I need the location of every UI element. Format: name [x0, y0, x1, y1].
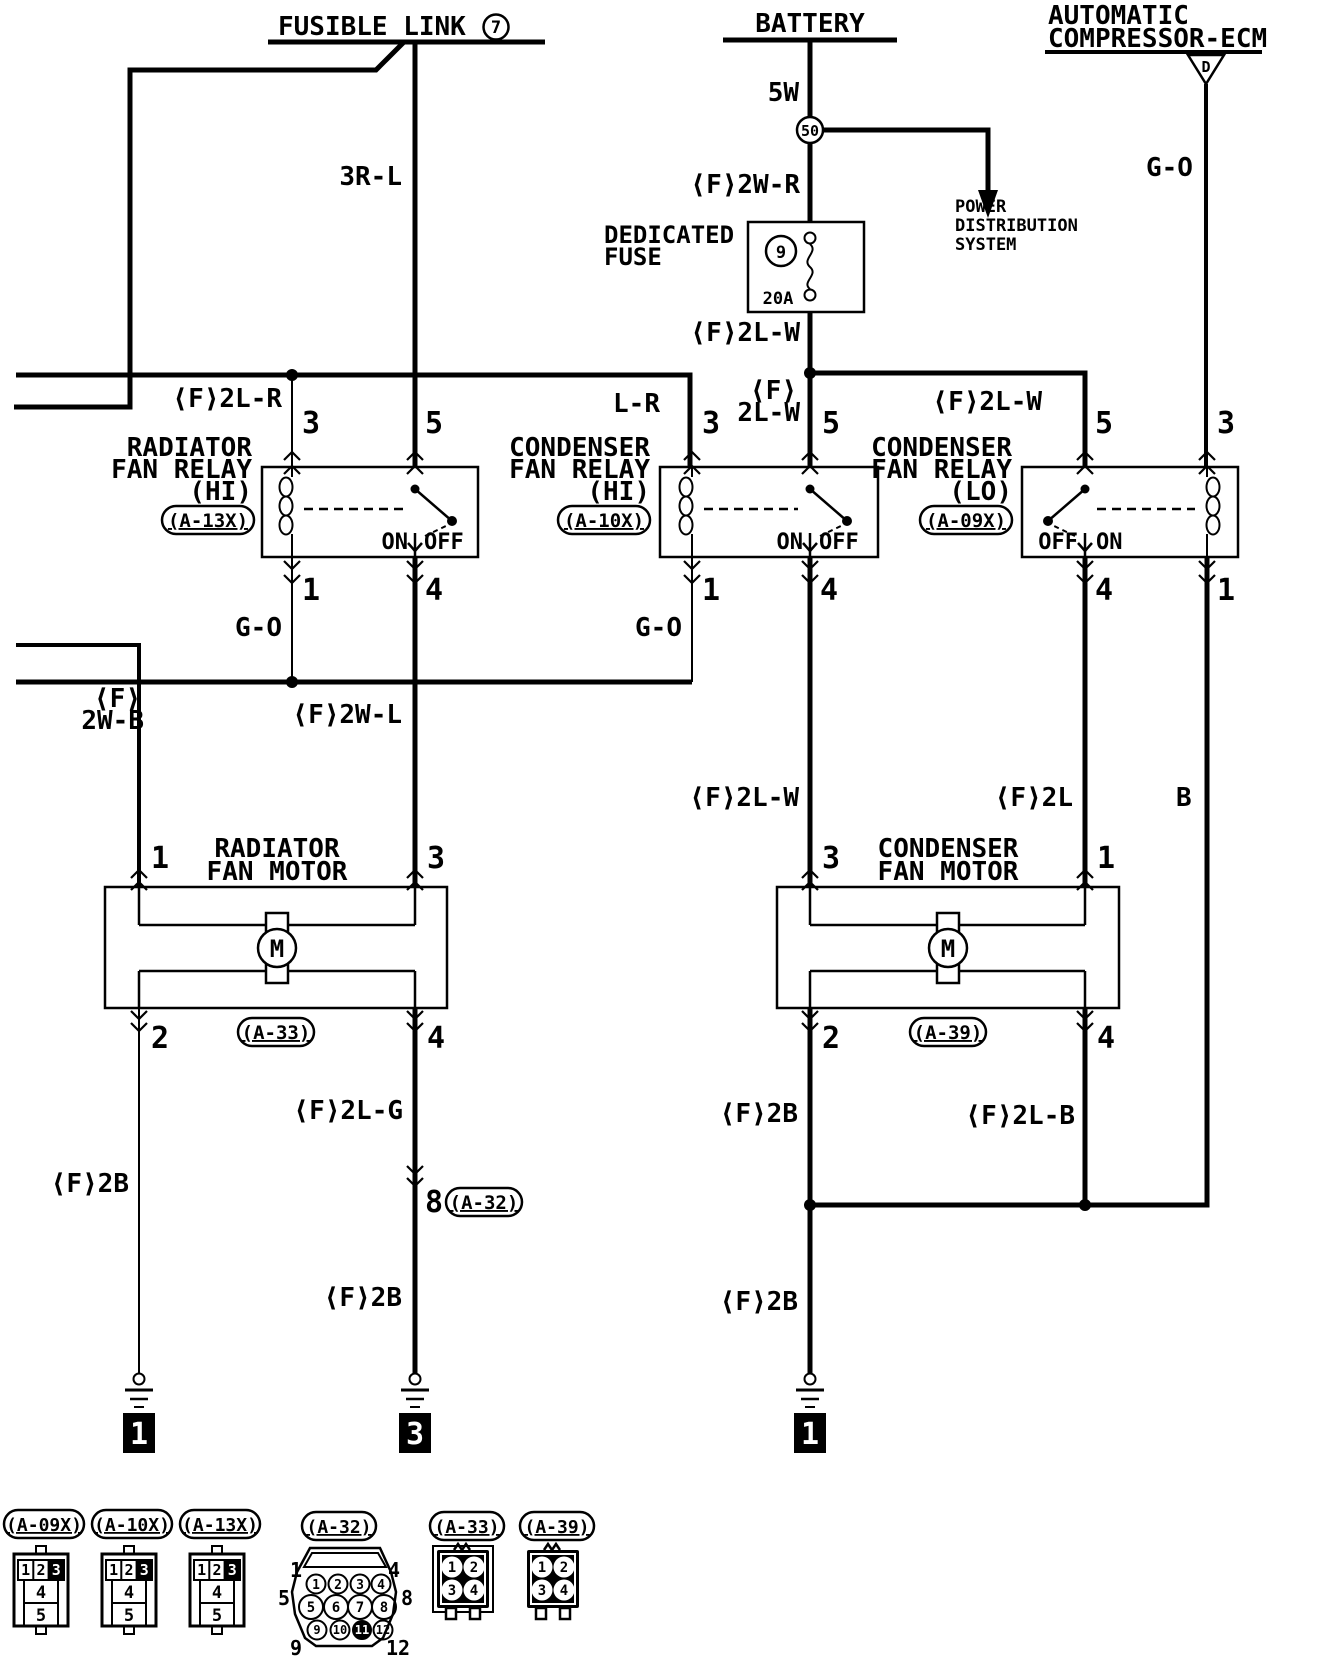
- fuse-label-line2: FUSE: [604, 243, 662, 271]
- power-dist-line3: SYSTEM: [955, 235, 1016, 255]
- a09x-face-pin: 1: [21, 1561, 30, 1579]
- a10x-pin5: 5: [822, 406, 840, 441]
- wire-junction-dot: [804, 367, 816, 379]
- a13x-face-pin5: 5: [212, 1606, 222, 1626]
- wire-f2b-r1-label: ⟨F⟩2B: [720, 1099, 798, 1129]
- ground-num-1: 1: [130, 1417, 148, 1452]
- a33-id: (A-33): [242, 1022, 311, 1044]
- a10x-id: (A-10X): [564, 510, 644, 532]
- fuse-rating: 20A: [763, 289, 794, 309]
- a10x-pin4: 4: [820, 573, 838, 608]
- a32-corner-4: 4: [388, 1558, 400, 1582]
- a13x-off-label: OFF: [424, 530, 464, 555]
- wire-junction-dot: [1079, 1199, 1091, 1211]
- a32-face-pin: 3: [356, 1578, 364, 1593]
- a13x-face-label: (A-13X): [182, 1515, 258, 1536]
- a32-pin8: 8: [425, 1185, 443, 1220]
- wire-f2l-label: ⟨F⟩2L: [995, 783, 1073, 813]
- a13x-face-pin: 2: [212, 1561, 221, 1579]
- a13x-pin3: 3: [302, 406, 320, 441]
- a13x-pin5: 5: [425, 406, 443, 441]
- power-dist-branch: [823, 130, 988, 192]
- a39-face-label: (A-39): [524, 1517, 589, 1538]
- a13x-pin1: 1: [302, 573, 320, 608]
- a09x-pin3: 3: [1217, 406, 1235, 441]
- a39-face-pin: 2: [560, 1560, 568, 1576]
- a32-face-pin: 11: [355, 1623, 369, 1637]
- battery-label: BATTERY: [755, 9, 865, 39]
- a32-face-pin: 5: [307, 1600, 315, 1616]
- a09x-pin1: 1: [1217, 573, 1235, 608]
- cond-motor-pin3: 3: [822, 841, 840, 876]
- cond-motor-pin4: 4: [1097, 1021, 1115, 1056]
- rad-motor-m: M: [270, 935, 284, 963]
- wire-3rl-label: 3R-L: [339, 162, 402, 192]
- connector-face-a33: [433, 1544, 493, 1619]
- a32-face-pin: 12: [376, 1623, 390, 1637]
- a13x-face-pin: 3: [228, 1561, 237, 1579]
- wire-junction-dot: [286, 369, 298, 381]
- a13x-pin4: 4: [425, 573, 443, 608]
- a10x-pin1: 1: [702, 573, 720, 608]
- cond-motor-name2: FAN MOTOR: [878, 857, 1019, 887]
- a10x-on-label: ON: [777, 530, 804, 555]
- wire-junction-dot: [804, 1199, 816, 1211]
- ground-num-3: 3: [406, 1417, 424, 1452]
- a32-face-label: (A-32): [306, 1517, 371, 1538]
- power-dist-line1: POWER: [955, 197, 1007, 217]
- cond-motor-pin2: 2: [822, 1021, 840, 1056]
- a09x-pin4: 4: [1095, 573, 1113, 608]
- fusible-left-branch: [14, 42, 404, 407]
- rad-motor-pin4: 4: [427, 1021, 445, 1056]
- cond-motor-pin1: 1: [1097, 841, 1115, 876]
- a10x-off-label: OFF: [819, 530, 859, 555]
- a32-face-pin: 7: [356, 1600, 364, 1616]
- a32-id: (A-32): [450, 1192, 519, 1214]
- wire-b-label: B: [1176, 783, 1192, 813]
- a33-face-pin: 1: [448, 1560, 456, 1576]
- a33-face-pin: 4: [470, 1583, 478, 1599]
- wire-f2lg-label: ⟨F⟩2L-G: [293, 1096, 403, 1126]
- a09x-face-pin4: 4: [36, 1583, 46, 1603]
- a09x-off-label: OFF: [1038, 530, 1078, 555]
- a10x-face-pin: 1: [109, 1561, 118, 1579]
- a32-corner-1: 1: [290, 1558, 302, 1582]
- junction-50-label: 50: [801, 122, 819, 140]
- a09x-face-pin: 3: [52, 1561, 61, 1579]
- wire-f2b-mid-label: ⟨F⟩2B: [324, 1283, 402, 1313]
- wire-go-a13x-label: G-O: [235, 613, 282, 643]
- rad-motor-pin3: 3: [427, 841, 445, 876]
- wire-f2lw-fuse-label: ⟨F⟩2L-W: [690, 318, 800, 348]
- wire-f2lb-label: ⟨F⟩2L-B: [965, 1101, 1075, 1131]
- power-dist-line2: DISTRIBUTION: [955, 216, 1078, 236]
- wiring-diagram: FUSIBLE LINK 7 BATTERY AUTOMATIC COMPRES…: [0, 0, 1344, 1658]
- a32-face-pin: 1: [312, 1578, 320, 1593]
- a32-corner-8: 8: [401, 1586, 413, 1610]
- a32-corner-12: 12: [386, 1636, 410, 1658]
- a09x-face-pin: 2: [36, 1561, 45, 1579]
- a39-face-pin: 4: [560, 1583, 568, 1599]
- a39-id: (A-39): [914, 1022, 983, 1044]
- diagram-canvas: FUSIBLE LINK 7 BATTERY AUTOMATIC COMPRES…: [0, 0, 1344, 1658]
- fusible-link-label: FUSIBLE LINK: [278, 12, 466, 42]
- wire-f2b-left-label: ⟨F⟩2B: [51, 1169, 129, 1199]
- wire-2lw-stack-label: 2L-W: [737, 398, 800, 428]
- a10x-face-pin4: 4: [124, 1583, 134, 1603]
- a13x-face-pin: 1: [197, 1561, 206, 1579]
- a32-face-pin: 6: [332, 1600, 340, 1616]
- a13x-face-pin4: 4: [212, 1583, 222, 1603]
- wire-go-ecm-label: G-O: [1146, 153, 1193, 183]
- wire-junction-dot: [286, 676, 298, 688]
- a33-face-pin: 2: [470, 1560, 478, 1576]
- a32-face-pin: 10: [333, 1623, 347, 1637]
- a33-face-label: (A-33): [434, 1517, 499, 1538]
- a10x-face-pin: 2: [124, 1561, 133, 1579]
- a10x-face-pin: 3: [140, 1561, 149, 1579]
- wire-lr-label: L-R: [613, 389, 660, 419]
- connector-face-a39: [527, 1544, 579, 1619]
- cond-motor-m: M: [941, 935, 955, 963]
- a09x-face-label: (A-09X): [6, 1515, 82, 1536]
- wire-f2lw-mid-label: ⟨F⟩2L-W: [689, 783, 799, 813]
- a09x-on-label: ON: [1096, 530, 1123, 555]
- a09x-name3: (LO): [949, 477, 1012, 507]
- a32-corner-9: 9: [290, 1636, 302, 1658]
- wire-5w-label: 5W: [768, 78, 800, 108]
- rad-motor-name2: FAN MOTOR: [207, 857, 348, 887]
- wire-f2wr-label: ⟨F⟩2W-R: [690, 170, 800, 200]
- a32-face-pin: 2: [334, 1578, 342, 1593]
- ground-symbols: [123, 1374, 826, 1454]
- a32-face-pin: 9: [313, 1623, 320, 1637]
- a39-face-pin: 1: [538, 1560, 546, 1576]
- a13x-name3: (HI): [189, 477, 252, 507]
- wire-f2wl-label: ⟨F⟩2W-L: [292, 700, 402, 730]
- ecm-label-line2: COMPRESSOR-ECM: [1048, 24, 1267, 54]
- rad-motor-pin1: 1: [151, 841, 169, 876]
- ground-num-1b: 1: [801, 1417, 819, 1452]
- a09x-id: (A-09X): [926, 510, 1006, 532]
- wire-f2lw-lo-label: ⟨F⟩2L-W: [932, 387, 1042, 417]
- a10x-name3: (HI): [587, 477, 650, 507]
- a10x-face-label: (A-10X): [94, 1515, 170, 1536]
- a39-face-pin: 3: [538, 1583, 546, 1599]
- wire-2wb-label: 2W-B: [81, 706, 144, 736]
- fusible-link-number: 7: [491, 18, 501, 38]
- a13x-on-label: ON: [382, 530, 409, 555]
- a13x-id: (A-13X): [168, 510, 248, 532]
- ecm-d-marker: D: [1201, 58, 1210, 76]
- a32-face-pin: 4: [377, 1578, 385, 1593]
- wire-go-a10x-label: G-O: [635, 613, 682, 643]
- wire-f2lr-label: ⟨F⟩2L-R: [172, 384, 282, 414]
- a09x-pin5: 5: [1095, 406, 1113, 441]
- rad-motor-pin2: 2: [151, 1021, 169, 1056]
- fuse-number: 9: [776, 243, 786, 263]
- wire-f2b-r2-label: ⟨F⟩2B: [720, 1287, 798, 1317]
- a32-face-pin: 8: [380, 1600, 388, 1616]
- a33-face-pin: 3: [448, 1583, 456, 1599]
- a10x-face-pin5: 5: [124, 1606, 134, 1626]
- a32-corner-5: 5: [278, 1586, 290, 1610]
- labels: FUSIBLE LINK 7 BATTERY AUTOMATIC COMPRES…: [6, 1, 1267, 1658]
- a09x-face-pin5: 5: [36, 1606, 46, 1626]
- a10x-pin3: 3: [702, 406, 720, 441]
